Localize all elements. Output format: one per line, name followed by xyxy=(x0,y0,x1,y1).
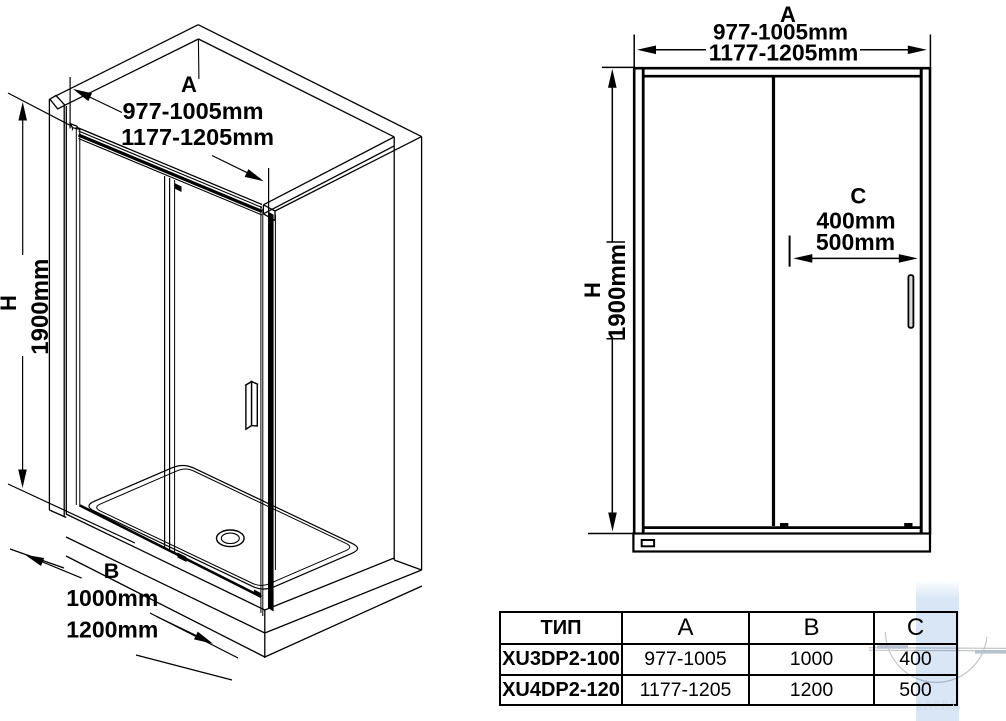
svg-text:C: C xyxy=(850,183,866,208)
svg-text:1177-1205mm: 1177-1205mm xyxy=(121,124,274,150)
svg-text:500mm: 500mm xyxy=(816,229,895,255)
svg-text:A: A xyxy=(181,72,197,97)
svg-text:1000mm: 1000mm xyxy=(66,585,158,611)
svg-text:1900mm: 1900mm xyxy=(27,259,54,355)
svg-text:H: H xyxy=(580,282,605,298)
svg-text:B: B xyxy=(104,559,120,583)
svg-text:1900mm: 1900mm xyxy=(604,244,631,340)
svg-text:1177-1205mm: 1177-1205mm xyxy=(709,39,859,65)
svg-text:1200mm: 1200mm xyxy=(66,617,158,643)
svg-text:977-1005mm: 977-1005mm xyxy=(122,98,263,124)
svg-text:H: H xyxy=(0,295,21,311)
